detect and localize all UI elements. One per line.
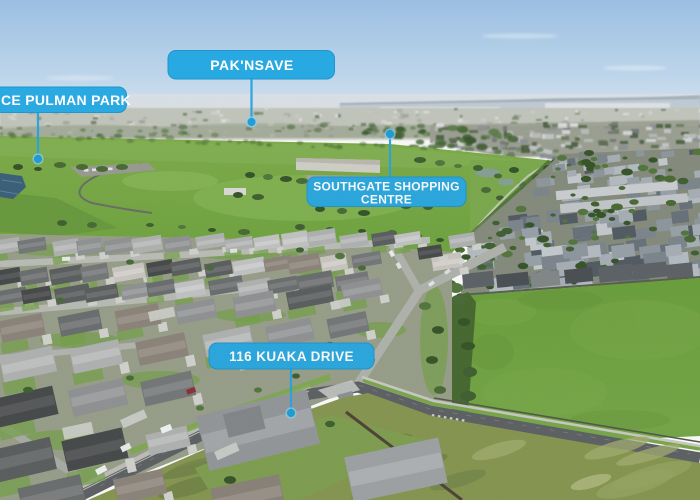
svg-text:PAK'NSAVE: PAK'NSAVE (210, 57, 294, 73)
svg-text:CE PULMAN PARK: CE PULMAN PARK (1, 92, 131, 108)
